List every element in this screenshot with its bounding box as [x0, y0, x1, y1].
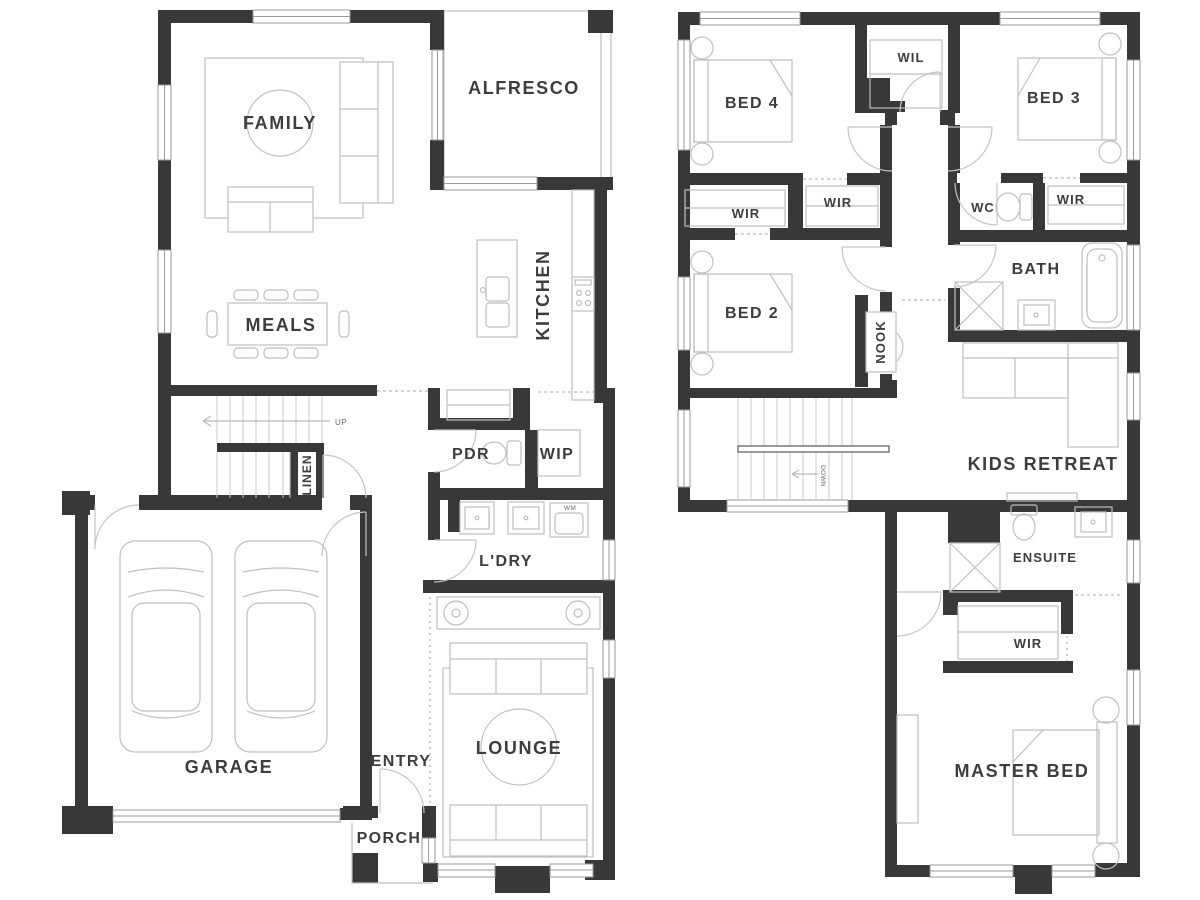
- vanity: [1018, 300, 1055, 330]
- fridge-space: [447, 390, 510, 420]
- garage-door: [113, 810, 340, 822]
- kitchen-fixtures: [447, 190, 594, 476]
- room-label-nook: NOOK: [873, 320, 888, 363]
- bath-fixtures: [955, 243, 1122, 330]
- room-label-bath: BATH: [1012, 261, 1061, 278]
- washing-machine-label: WM: [564, 505, 576, 512]
- cooktop: [572, 277, 594, 311]
- room-label-bed4: BED 4: [725, 95, 779, 112]
- room-label-wc: WC: [971, 200, 995, 215]
- car: [235, 541, 327, 752]
- room-label-family: FAMILY: [243, 113, 317, 133]
- kitchen-sink: [486, 277, 509, 301]
- car: [120, 541, 212, 752]
- room-label-wil: WIL: [897, 50, 924, 65]
- alfresco-area: [444, 11, 611, 188]
- stairs-down: [738, 398, 889, 500]
- room-label-wir-bed4: WIR: [732, 206, 761, 221]
- room-label-ensuite: ENSUITE: [1013, 550, 1077, 565]
- room-label-kitchen: KITCHEN: [533, 249, 553, 340]
- room-label-garage: GARAGE: [185, 757, 274, 777]
- room-label-wip: WIP: [540, 446, 574, 463]
- ground-floor-plan: FAMILY ALFRESCO KITCHEN MEALS UP LINEN P…: [62, 10, 615, 893]
- entertainment-unit: [437, 597, 600, 629]
- floor-plan-drawing: FAMILY ALFRESCO KITCHEN MEALS UP LINEN P…: [0, 0, 1200, 900]
- room-label-pdr: PDR: [452, 446, 490, 463]
- bathtub: [1082, 243, 1122, 328]
- room-label-bed2: BED 2: [725, 305, 779, 322]
- first-floor-plan: BED 4 WIL BED 3 WIR WIR WC WIR BED 2 BAT…: [678, 12, 1140, 894]
- room-label-wir-bed3: WIR: [1057, 192, 1086, 207]
- room-label-master-bed: MASTER BED: [954, 761, 1089, 781]
- master-bed-furniture: [897, 697, 1119, 869]
- wc-toilet: [996, 193, 1032, 221]
- room-label-lounge: LOUNGE: [476, 738, 563, 758]
- family-room-furniture: [205, 58, 393, 232]
- room-label-meals: MEALS: [246, 315, 317, 335]
- stairs-up-label: UP: [335, 418, 347, 427]
- kids-retreat-sofa: [963, 343, 1118, 501]
- room-label-wir-hall: WIR: [824, 195, 853, 210]
- basin: [1075, 507, 1112, 537]
- shower: [955, 282, 1003, 330]
- shower: [950, 543, 1000, 592]
- bed: [1013, 730, 1099, 835]
- built-in-shelf: [897, 715, 918, 823]
- retreat-bench: [1007, 493, 1077, 501]
- stairs-down-label: DOWN: [819, 465, 826, 487]
- first-floor-openings: [735, 178, 1123, 661]
- master-wir-robe: [958, 606, 1058, 659]
- ground-floor-walls: [62, 10, 615, 893]
- garage-cars: [120, 541, 327, 752]
- room-label-porch: PORCH: [357, 830, 422, 847]
- room-label-wir-master: WIR: [1014, 636, 1043, 651]
- entry-sidelight: [422, 838, 435, 863]
- floor-plan-page: FAMILY ALFRESCO KITCHEN MEALS UP LINEN P…: [0, 0, 1200, 900]
- room-label-kids-retreat: KIDS RETREAT: [968, 454, 1119, 474]
- room-label-bed3: BED 3: [1027, 90, 1081, 107]
- sofa: [450, 805, 587, 856]
- room-label-linen: LINEN: [300, 455, 314, 496]
- room-label-alfresco: ALFRESCO: [468, 78, 580, 98]
- room-label-entry: ENTRY: [371, 753, 432, 770]
- sofa: [450, 643, 587, 694]
- lounge-furniture: [437, 597, 600, 857]
- room-label-laundry: L'DRY: [479, 553, 533, 570]
